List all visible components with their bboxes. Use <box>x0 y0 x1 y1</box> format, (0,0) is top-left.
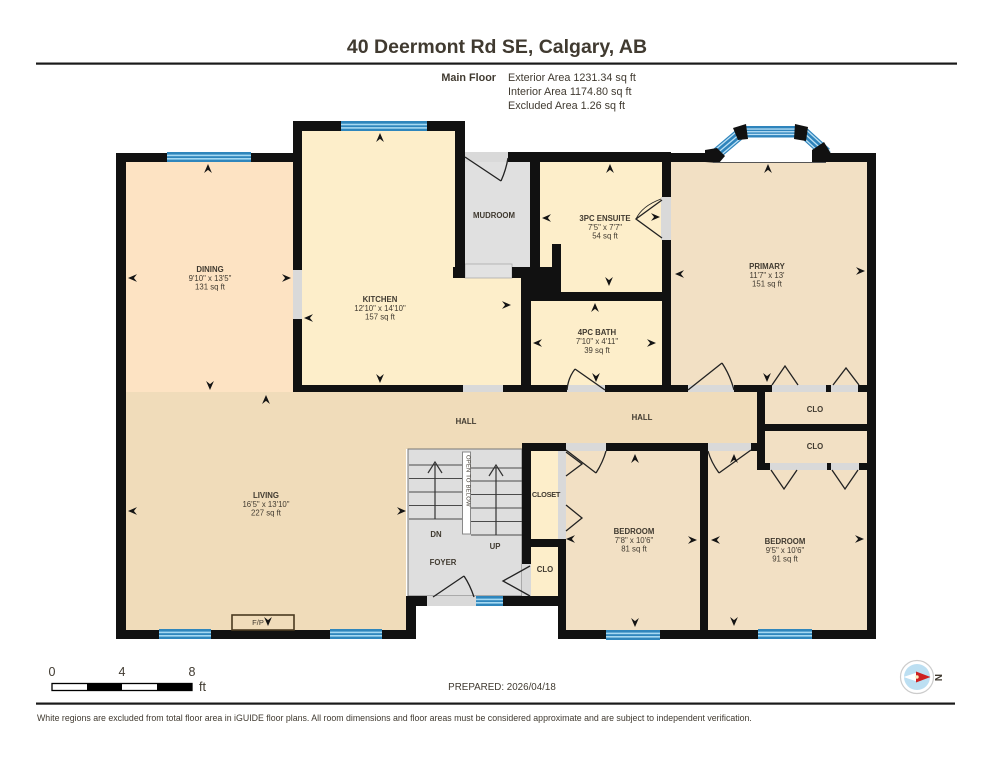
svg-text:OPEN TO BELOW: OPEN TO BELOW <box>465 455 471 507</box>
svg-text:7'10" x 4'11": 7'10" x 4'11" <box>576 337 618 346</box>
svg-text:White regions are excluded fro: White regions are excluded from total fl… <box>37 713 752 723</box>
svg-text:MUDROOM: MUDROOM <box>473 211 515 220</box>
svg-text:12'10" x 14'10": 12'10" x 14'10" <box>354 304 406 313</box>
svg-text:40 Deermont Rd SE, Calgary, AB: 40 Deermont Rd SE, Calgary, AB <box>347 36 647 58</box>
svg-text:Excluded Area 1.26 sq ft: Excluded Area 1.26 sq ft <box>508 100 625 112</box>
svg-text:Exterior Area 1231.34 sq ft: Exterior Area 1231.34 sq ft <box>508 72 636 84</box>
svg-text:4: 4 <box>119 665 126 679</box>
svg-text:BEDROOM: BEDROOM <box>765 537 806 546</box>
svg-text:157 sq ft: 157 sq ft <box>365 313 396 322</box>
svg-text:DINING: DINING <box>196 265 223 274</box>
svg-text:CLOSET: CLOSET <box>532 490 561 499</box>
svg-text:HALL: HALL <box>456 417 477 426</box>
svg-text:151 sq ft: 151 sq ft <box>752 280 783 289</box>
svg-text:9'5" x 10'6": 9'5" x 10'6" <box>766 546 805 555</box>
svg-text:81 sq ft: 81 sq ft <box>621 545 647 554</box>
svg-text:8: 8 <box>189 665 196 679</box>
svg-text:F/P: F/P <box>252 618 264 627</box>
svg-text:ft: ft <box>199 680 206 694</box>
svg-text:FOYER: FOYER <box>430 558 457 567</box>
svg-text:0: 0 <box>49 665 56 679</box>
svg-text:9'10" x 13'5": 9'10" x 13'5" <box>189 274 232 283</box>
svg-text:4PC BATH: 4PC BATH <box>578 328 617 337</box>
svg-text:Interior Area 1174.80 sq ft: Interior Area 1174.80 sq ft <box>508 86 631 98</box>
svg-text:39 sq ft: 39 sq ft <box>584 346 610 355</box>
svg-text:PRIMARY: PRIMARY <box>749 262 785 271</box>
svg-text:LIVING: LIVING <box>253 491 279 500</box>
svg-text:KITCHEN: KITCHEN <box>363 295 398 304</box>
svg-text:BEDROOM: BEDROOM <box>614 527 655 536</box>
svg-text:227 sq ft: 227 sq ft <box>251 509 282 518</box>
svg-text:91 sq ft: 91 sq ft <box>772 555 798 564</box>
svg-text:HALL: HALL <box>632 413 653 422</box>
svg-text:7'5" x 7'7": 7'5" x 7'7" <box>588 223 622 232</box>
svg-text:11'7" x 13': 11'7" x 13' <box>749 271 785 280</box>
svg-text:3PC ENSUITE: 3PC ENSUITE <box>579 214 630 223</box>
svg-text:131 sq ft: 131 sq ft <box>195 283 226 292</box>
svg-text:PREPARED: 2026/04/18: PREPARED: 2026/04/18 <box>448 682 556 693</box>
svg-text:CLO: CLO <box>807 405 823 414</box>
svg-text:16'5" x 13'10": 16'5" x 13'10" <box>242 500 289 509</box>
svg-text:7'8" x 10'6": 7'8" x 10'6" <box>615 536 654 545</box>
svg-text:Main Floor: Main Floor <box>441 72 496 84</box>
svg-text:CLO: CLO <box>537 565 553 574</box>
svg-text:N: N <box>932 674 943 681</box>
svg-text:CLO: CLO <box>807 442 823 451</box>
svg-text:54 sq ft: 54 sq ft <box>592 232 618 241</box>
svg-text:DN: DN <box>430 530 442 539</box>
svg-text:UP: UP <box>490 542 501 551</box>
